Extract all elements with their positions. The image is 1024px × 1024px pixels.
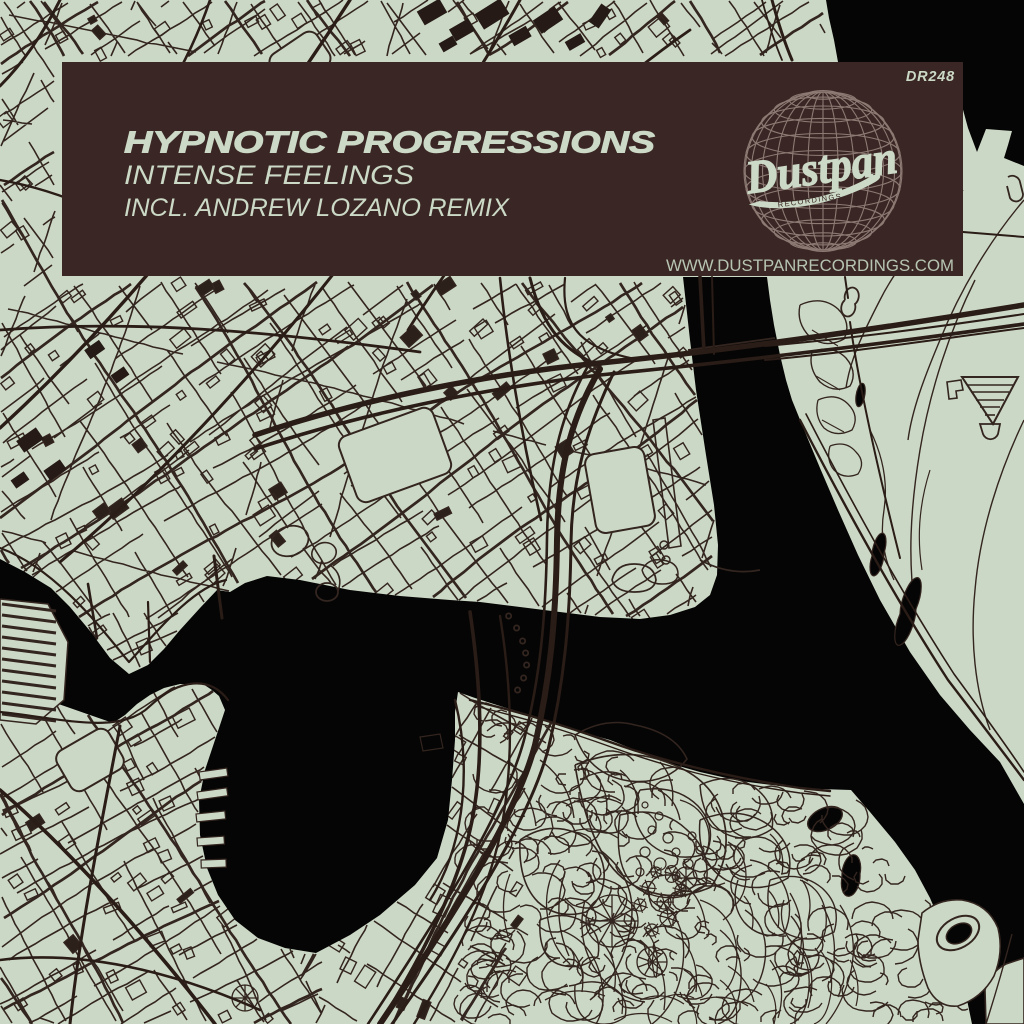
svg-text:WWW.DUSTPANRECORDINGS.COM: WWW.DUSTPANRECORDINGS.COM <box>666 257 954 275</box>
svg-text:DR248: DR248 <box>906 69 955 85</box>
svg-text:HYPNOTIC PROGRESSIONS: HYPNOTIC PROGRESSIONS <box>124 125 655 160</box>
svg-text:INCL. ANDREW LOZANO REMIX: INCL. ANDREW LOZANO REMIX <box>124 194 510 222</box>
svg-text:INTENSE FEELINGS: INTENSE FEELINGS <box>124 160 414 190</box>
